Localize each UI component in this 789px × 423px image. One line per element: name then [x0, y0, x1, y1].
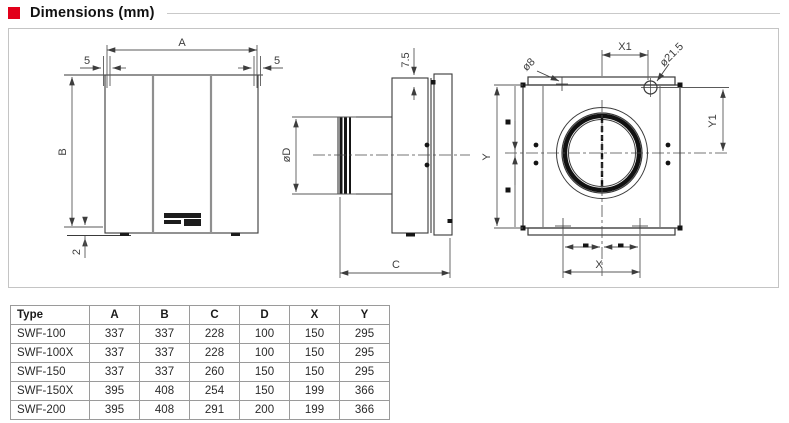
drawing-panel: A 5 5 B 2 — [8, 28, 779, 288]
dim-Y — [494, 85, 523, 228]
value-cell: 337 — [90, 325, 140, 344]
dim-X1 — [602, 50, 648, 80]
value-cell: 395 — [90, 401, 140, 420]
spec-table: TypeABCDXY SWF-100337337228100150295SWF-… — [10, 305, 390, 420]
table-row: SWF-150337337260150150295 — [11, 363, 390, 382]
type-cell: SWF-100 — [11, 325, 90, 344]
column-header: Y — [340, 306, 390, 325]
type-cell: SWF-200 — [11, 401, 90, 420]
dim-5-right-label: 5 — [274, 55, 280, 67]
value-cell: 254 — [190, 382, 240, 401]
value-cell: 395 — [90, 382, 140, 401]
value-cell: 337 — [140, 344, 190, 363]
column-header: D — [240, 306, 290, 325]
value-cell: 200 — [240, 401, 290, 420]
front-view — [64, 75, 263, 236]
value-cell: 150 — [290, 325, 340, 344]
value-cell: 291 — [190, 401, 240, 420]
dim-C-label: C — [392, 259, 400, 271]
column-header: B — [140, 306, 190, 325]
dim-7-5-label: 7.5 — [400, 52, 412, 67]
value-cell: 408 — [140, 382, 190, 401]
value-cell: 337 — [140, 363, 190, 382]
hole-marks — [555, 77, 660, 234]
side-view — [338, 74, 452, 235]
section-header: Dimensions (mm) — [8, 3, 780, 23]
value-cell: 366 — [340, 401, 390, 420]
dim-d8-label: ø8 — [520, 56, 538, 74]
column-header: X — [290, 306, 340, 325]
side-view-details — [406, 80, 453, 237]
column-header: Type — [11, 306, 90, 325]
value-cell: 199 — [290, 401, 340, 420]
table-row: SWF-200395408291200199366 — [11, 401, 390, 420]
dim-2-label: 2 — [71, 249, 83, 255]
value-cell: 100 — [240, 344, 290, 363]
dim-X1-label: X1 — [618, 41, 631, 53]
dim-Y-label: Y — [481, 153, 493, 161]
dim-d8-leader — [537, 71, 559, 81]
value-cell: 295 — [340, 325, 390, 344]
value-cell: 150 — [290, 363, 340, 382]
dim-B-label: B — [57, 148, 69, 155]
type-cell: SWF-150X — [11, 382, 90, 401]
value-cell: 150 — [240, 363, 290, 382]
page-title: Dimensions (mm) — [30, 5, 155, 21]
value-cell: 228 — [190, 325, 240, 344]
dim-B — [64, 77, 103, 227]
header-rule — [167, 13, 780, 14]
table-row: SWF-100337337228100150295 — [11, 325, 390, 344]
technical-drawing: A 5 5 B 2 — [9, 29, 778, 287]
type-cell: SWF-100X — [11, 344, 90, 363]
dim-Y-split — [506, 86, 516, 227]
dim-A-label: A — [178, 37, 186, 49]
dim-Y1-label: Y1 — [707, 114, 719, 127]
value-cell: 100 — [240, 325, 290, 344]
value-cell: 337 — [90, 363, 140, 382]
type-cell: SWF-150 — [11, 363, 90, 382]
value-cell: 150 — [240, 382, 290, 401]
table-row: SWF-150X395408254150199366 — [11, 382, 390, 401]
red-bullet-icon — [8, 7, 20, 19]
rear-view — [523, 77, 680, 235]
value-cell: 337 — [90, 344, 140, 363]
dim-A — [107, 45, 257, 88]
column-header: A — [90, 306, 140, 325]
dim-D-label: øD — [281, 148, 293, 163]
table-row: SWF-100X337337228100150295 — [11, 344, 390, 363]
value-cell: 260 — [190, 363, 240, 382]
value-cell: 199 — [290, 382, 340, 401]
column-header: C — [190, 306, 240, 325]
dim-d215-label: ø21.5 — [658, 41, 686, 69]
value-cell: 150 — [290, 344, 340, 363]
spec-table-body: SWF-100337337228100150295SWF-100X3373372… — [11, 325, 390, 420]
value-cell: 228 — [190, 344, 240, 363]
spec-table-head: TypeABCDXY — [11, 306, 390, 325]
value-cell: 295 — [340, 363, 390, 382]
value-cell: 366 — [340, 382, 390, 401]
value-cell: 337 — [140, 325, 190, 344]
value-cell: 295 — [340, 344, 390, 363]
dim-5-left-label: 5 — [84, 55, 90, 67]
dim-X-label: X — [595, 259, 603, 271]
value-cell: 408 — [140, 401, 190, 420]
